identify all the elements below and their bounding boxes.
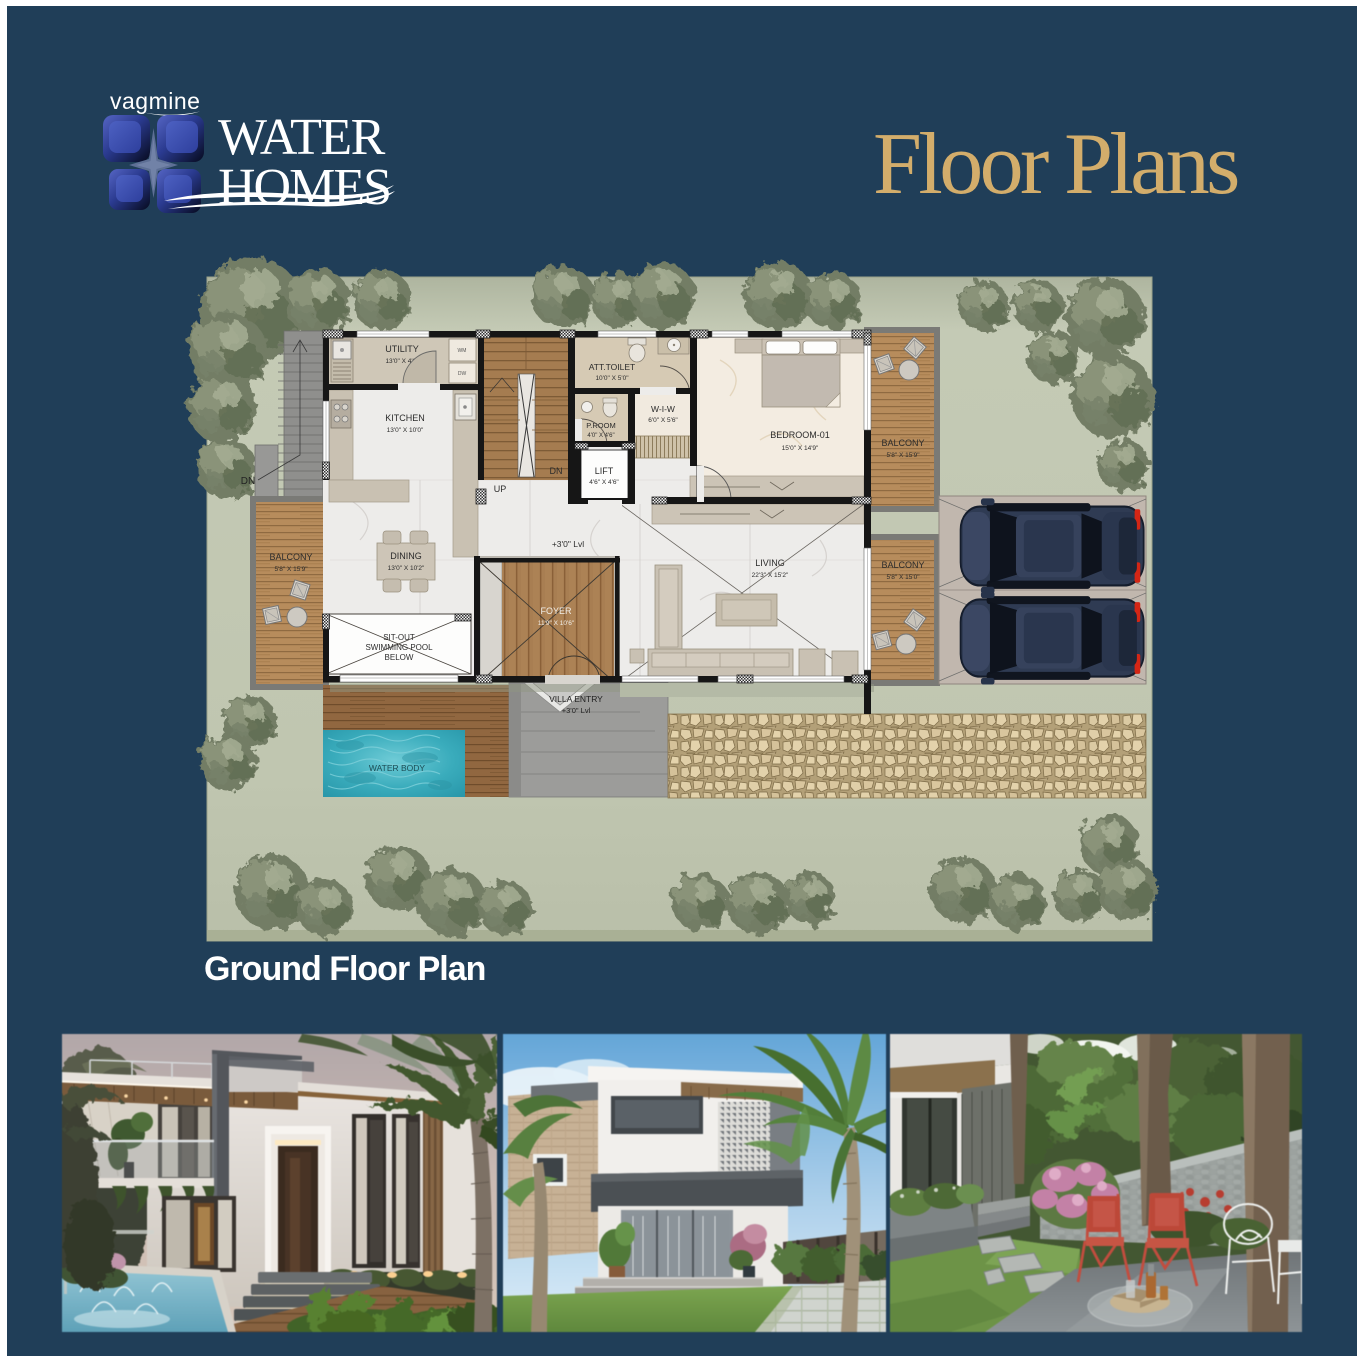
- svg-text:WATER BODY: WATER BODY: [369, 763, 426, 773]
- svg-text:+3'0" Lvl: +3'0" Lvl: [562, 706, 591, 715]
- svg-text:BALCONY: BALCONY: [881, 560, 924, 570]
- svg-text:DINING: DINING: [390, 551, 422, 561]
- svg-text:FOYER: FOYER: [540, 606, 572, 616]
- svg-text:5'8" X 15'9": 5'8" X 15'9": [886, 452, 920, 459]
- svg-text:UP: UP: [494, 484, 507, 494]
- svg-text:22'3" X 15'2": 22'3" X 15'2": [752, 572, 789, 579]
- svg-text:DW: DW: [458, 371, 467, 377]
- svg-text:SWIMMING POOL: SWIMMING POOL: [365, 643, 433, 652]
- svg-text:+3'0" Lvl: +3'0" Lvl: [552, 539, 584, 549]
- svg-text:10'0" X 5'0": 10'0" X 5'0": [595, 375, 629, 382]
- svg-text:6'0" X 5'6": 6'0" X 5'6": [648, 417, 678, 424]
- svg-text:LIFT: LIFT: [595, 466, 614, 476]
- svg-text:KITCHEN: KITCHEN: [385, 413, 425, 423]
- svg-text:W-I-W: W-I-W: [651, 404, 675, 414]
- svg-text:SIT-OUT: SIT-OUT: [383, 633, 415, 642]
- svg-text:5'8" X 15'0": 5'8" X 15'0": [886, 574, 920, 581]
- svg-text:LIVING: LIVING: [755, 558, 785, 568]
- svg-text:4'6" X 4'6": 4'6" X 4'6": [589, 479, 619, 486]
- svg-text:BEDROOM-01: BEDROOM-01: [770, 430, 830, 440]
- svg-text:DN: DN: [550, 466, 563, 476]
- svg-text:WM: WM: [458, 348, 467, 354]
- svg-text:13'0" X 10'2": 13'0" X 10'2": [388, 565, 425, 572]
- svg-text:BALCONY: BALCONY: [881, 438, 924, 448]
- svg-text:VILLA ENTRY: VILLA ENTRY: [549, 694, 603, 704]
- svg-text:11'9" X 10'6": 11'9" X 10'6": [538, 620, 575, 627]
- svg-text:UTILITY: UTILITY: [385, 344, 419, 354]
- svg-text:15'0" X 14'9": 15'0" X 14'9": [782, 445, 819, 452]
- svg-text:BALCONY: BALCONY: [269, 552, 312, 562]
- svg-text:5'8" X 15'9": 5'8" X 15'9": [274, 566, 308, 573]
- svg-text:13'0" X 10'0": 13'0" X 10'0": [387, 427, 424, 434]
- svg-text:DN: DN: [241, 476, 255, 487]
- svg-text:BELOW: BELOW: [385, 653, 414, 662]
- svg-text:ATT.TOILET: ATT.TOILET: [589, 362, 635, 372]
- svg-text:4'0" X 4'6": 4'0" X 4'6": [587, 433, 614, 439]
